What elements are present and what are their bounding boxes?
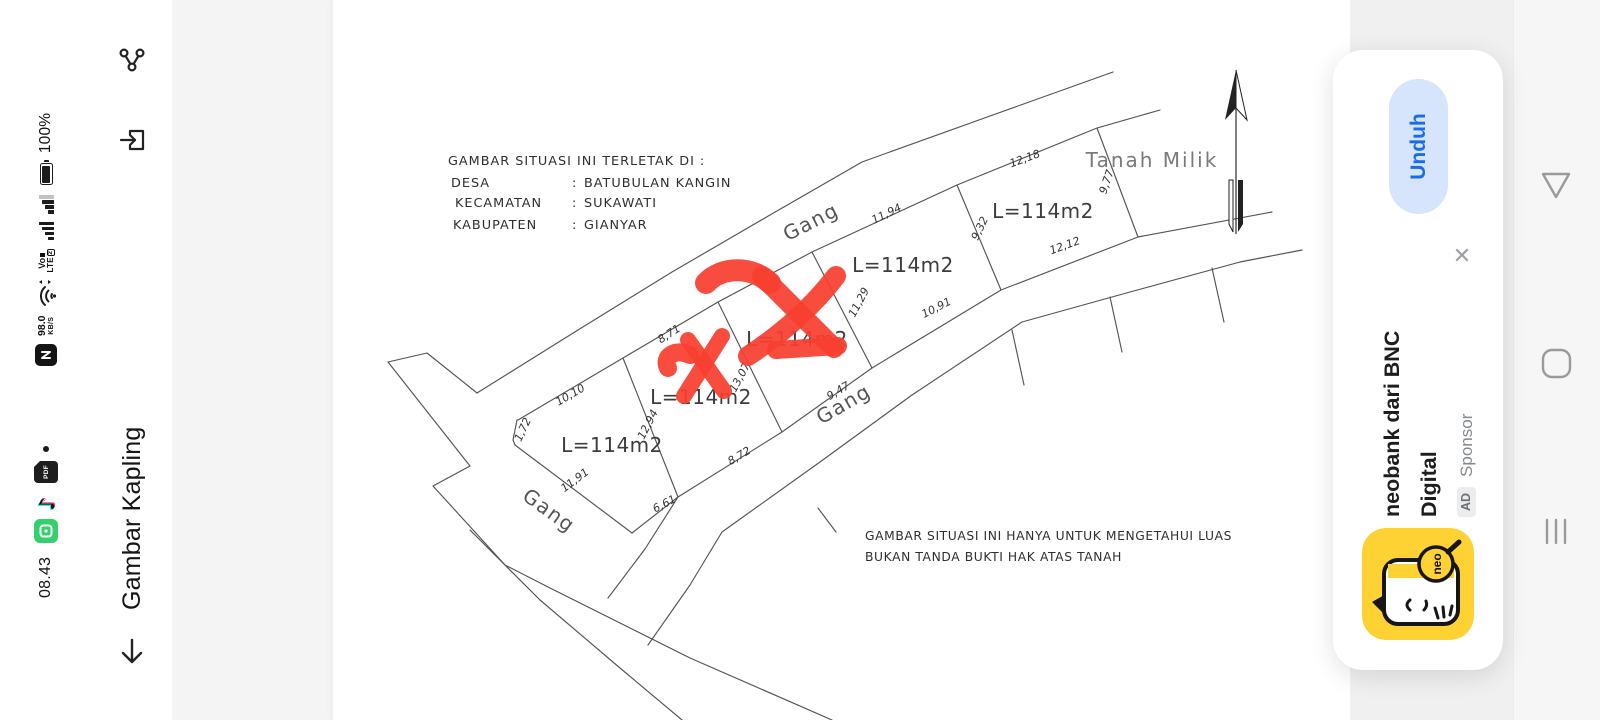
measurement-label: 1,72 (512, 416, 534, 444)
green-app-icon (34, 519, 58, 543)
measurement-label: 10,91 (919, 295, 953, 321)
nav-bar-icons (1513, 0, 1600, 720)
network-speed: 98.0 KB/S (37, 316, 55, 336)
nav-home-icon[interactable] (1543, 350, 1570, 377)
app-header: Gambar Kapling (92, 0, 172, 720)
ad-logo-text: neo (1430, 553, 1444, 574)
page-title: Gambar Kapling (118, 427, 147, 610)
ad-logo[interactable]: neo (1362, 528, 1474, 640)
measurement-label: 8,72 (725, 444, 753, 468)
location-title: GAMBAR SITUASI INI TERLETAK DI : (448, 154, 705, 169)
location-row-label: DESA (451, 176, 490, 191)
location-row-label: KABUPATEN (453, 218, 537, 233)
nav-back-icon[interactable] (1543, 174, 1569, 197)
tiktok-icon: ♪♪♪ (34, 490, 58, 512)
signal-bars-sim2-icon (39, 195, 54, 214)
measurement-label: 9,77 (1097, 168, 1117, 195)
volte-indicator: Vo LTE2 (38, 249, 55, 272)
location-row-value: BATUBULAN KANGIN (584, 176, 731, 191)
north-arrow-icon (1225, 70, 1247, 234)
ad-title-line1: neobank dari BNC (1374, 272, 1411, 517)
location-row-sep: : (572, 196, 577, 211)
location-row-sep: : (572, 218, 577, 233)
location-row-label: KECAMATAN (455, 196, 542, 211)
battery-icon (40, 160, 53, 185)
disclaimer-line: GAMBAR SITUASI INI HANYA UNTUK MENGETAHU… (865, 529, 1232, 543)
measurement-label: 12,18 (1008, 147, 1042, 170)
status-bar: 08.43 ♪♪♪ PDF 98.0 KB/S Vo LTE2 100% (0, 0, 92, 720)
disclaimer-line: BUKAN TANDA BUKTI HAK ATAS TANAH (865, 550, 1122, 564)
location-row-value: SUKAWATI (584, 196, 657, 211)
measurement-label: 6,61 (650, 492, 678, 515)
location-row-value: GIANYAR (584, 218, 648, 233)
ad-close-icon[interactable]: ✕ (1448, 242, 1476, 270)
plot-area-label: L=114m2 (852, 253, 954, 277)
ad-badge: AD (1457, 487, 1476, 517)
pdf-icon: PDF (34, 461, 58, 483)
ad-download-label: Unduh (1407, 113, 1431, 179)
measurement-label: 11,94 (869, 201, 903, 226)
back-icon[interactable] (119, 636, 145, 666)
nav-recents-icon[interactable] (1547, 520, 1565, 543)
measurement-label: 9,32 (969, 215, 991, 243)
location-row-sep: : (572, 176, 577, 191)
measurement-label: 12,12 (1048, 234, 1082, 257)
ad-text-block: neobank dari BNC Digital AD Sponsor (1374, 272, 1485, 517)
nfc-icon (35, 344, 57, 366)
clock: 08.43 (37, 557, 55, 598)
download-icon[interactable] (118, 125, 146, 153)
location-block: GAMBAR SITUASI INI TERLETAK DI : DESA : … (448, 154, 731, 233)
plot-area-label: L=114m2 (992, 199, 1094, 223)
signal-bars-sim1-icon (39, 222, 54, 241)
share-icon[interactable] (118, 46, 146, 73)
measurement-label: 10,10 (553, 381, 587, 408)
ad-title-line2: Digital (1411, 272, 1448, 517)
ad-download-button[interactable]: Unduh (1389, 79, 1448, 214)
measurement-label: 11,29 (846, 285, 872, 319)
battery-percent: 100% (37, 113, 55, 153)
wifi-icon (34, 280, 58, 308)
notification-dot-icon (43, 446, 49, 452)
ad-sponsor-label: Sponsor (1448, 414, 1485, 477)
